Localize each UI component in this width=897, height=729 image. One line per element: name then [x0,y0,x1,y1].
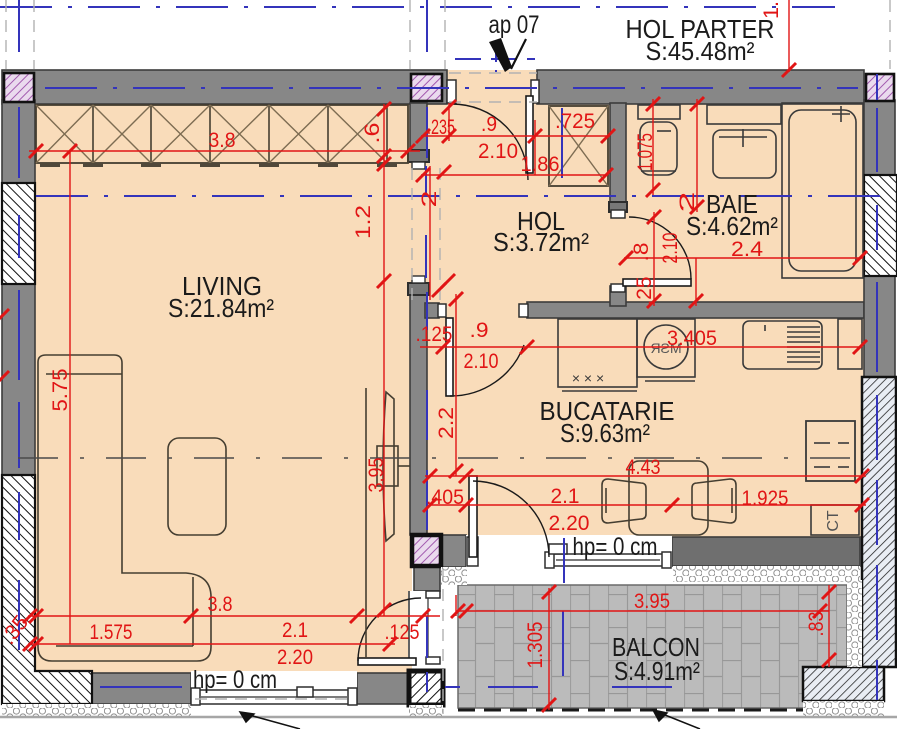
svg-text:4.43: 4.43 [626,456,661,479]
svg-text:.83: .83 [805,612,828,637]
svg-text:2.1: 2.1 [551,485,580,508]
svg-text:3.8: 3.8 [209,129,236,152]
svg-text:S:9.63m²: S:9.63m² [560,418,650,448]
svg-text:3.95: 3.95 [634,590,670,613]
svg-text:5.75: 5.75 [49,369,72,412]
svg-text:.125: .125 [416,323,453,346]
svg-text:3.95: 3.95 [365,458,388,493]
svg-text:2.2: 2.2 [435,407,458,439]
svg-text:.235: .235 [427,116,455,139]
svg-text:1.925: 1.925 [742,487,789,510]
svg-text:3.8: 3.8 [208,593,233,616]
svg-text:.125: .125 [385,621,420,644]
svg-text:3.405: 3.405 [667,327,717,350]
svg-text:S:4.62m²: S:4.62m² [686,211,778,241]
svg-text:S:45.48m²: S:45.48m² [646,36,755,66]
svg-text:CT: CT [825,510,842,532]
svg-text:.405: .405 [426,486,464,509]
svg-text:.8: .8 [630,243,653,262]
svg-text:hp= 0 cm: hp= 0 cm [573,533,658,561]
svg-text:1.86: 1.86 [521,153,560,176]
svg-text:.9: .9 [470,319,489,342]
svg-text:S:21.84m²: S:21.84m² [168,293,274,323]
svg-text:S:4.91m²: S:4.91m² [614,656,700,686]
svg-text:× × ×: × × × [572,370,604,386]
svg-text:2.10: 2.10 [659,233,682,264]
svg-text:1.575: 1.575 [90,621,133,644]
svg-text:1.305: 1.305 [524,622,547,669]
svg-text:.6: .6 [361,123,384,144]
svg-text:2.20: 2.20 [277,646,313,669]
svg-text:2.20: 2.20 [549,512,590,535]
svg-text:.25: .25 [633,277,656,306]
svg-text:1.075: 1.075 [634,133,657,171]
svg-text:hp= 0 cm: hp= 0 cm [193,666,277,694]
svg-text:S:3.72m²: S:3.72m² [493,227,589,257]
svg-text:.725: .725 [555,110,595,133]
svg-text:ap 07: ap 07 [489,11,540,39]
svg-text:2.1: 2.1 [282,619,308,642]
svg-text:2: 2 [418,191,441,208]
svg-text:2.10: 2.10 [464,350,499,373]
svg-text:1.2: 1.2 [352,205,375,239]
svg-text:.9: .9 [481,113,497,136]
svg-text:2.4: 2.4 [731,238,763,261]
svg-text:2: 2 [676,192,699,213]
svg-text:2.10: 2.10 [478,140,518,163]
